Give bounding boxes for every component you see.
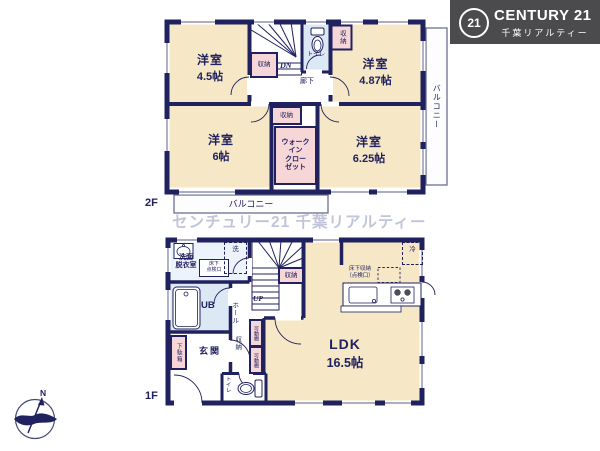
entrance-label: 玄関 xyxy=(190,346,230,357)
stairs-up-label: UP xyxy=(253,294,263,303)
room-name: LDK xyxy=(329,336,361,352)
movable-shelf-bottom-label: 可動棚 xyxy=(250,347,262,373)
walk-in-closet-label: ウォーク イン クロー ゼット xyxy=(275,127,316,184)
room-name: 洋室 xyxy=(208,131,234,148)
hall-closet-label: 収納 xyxy=(233,336,241,351)
logo-brand-text: CENTURY 21 xyxy=(494,7,592,24)
compass-icon xyxy=(8,388,66,446)
toilet-icon-1f xyxy=(238,380,262,397)
refrigerator-space: 冷 xyxy=(402,242,423,265)
floor-label-1f: 1F xyxy=(145,390,158,403)
room-label-2f-se: 洋室 6.25帖 xyxy=(318,133,420,166)
compass: N xyxy=(8,388,66,446)
logo-badge-number: 21 xyxy=(467,16,480,30)
room-size: 6.25帖 xyxy=(353,150,385,166)
toilet-icon-2f xyxy=(311,28,324,53)
closet-by-stairs-label-2f: 収納 xyxy=(251,53,277,77)
room-label-2f-ne: 洋室 4.87帖 xyxy=(331,55,420,88)
closet-by-stairs-label-1f: 収納 xyxy=(279,268,303,283)
room-name: 洋室 xyxy=(362,55,388,72)
washer-space: 洗 xyxy=(224,242,247,274)
logo-subtitle: 千葉リアルティー xyxy=(494,26,596,39)
washroom-label: 洗面 脱衣室 xyxy=(170,254,202,271)
movable-shelf-top-label: 可動棚 xyxy=(250,320,262,346)
closet-center-label-2f: 収納 xyxy=(272,107,301,124)
floorplan-2f-drawing xyxy=(145,15,465,220)
room-size: 6帖 xyxy=(212,148,229,164)
balcony-right-label: バルコニー xyxy=(426,28,447,185)
room-label-ldk: LDK 16.5帖 xyxy=(293,336,397,371)
kitchen-sink-icon xyxy=(349,287,377,303)
floorplan-2f: 洋室 4.5帖 洋室 4.87帖 洋室 6帖 洋室 6.25帖 DN 廊下 トイ… xyxy=(145,15,465,220)
room-name: 洋室 xyxy=(356,133,382,150)
toilet-label-1f: トイレ xyxy=(224,376,231,393)
room-label-2f-sw: 洋室 6帖 xyxy=(170,131,272,164)
toilet-label-2f: トイレ xyxy=(302,52,330,59)
unit-bath-label: UB xyxy=(201,300,215,311)
room-label-2f-nw: 洋室 4.5帖 xyxy=(170,51,250,84)
stairs-down-label: DN xyxy=(280,61,292,71)
floor-label-2f: 2F xyxy=(145,197,158,210)
compass-north-label: N xyxy=(40,388,46,398)
balcony-bottom-label: バルコニー xyxy=(174,195,328,213)
century21-logo: 21 CENTURY 21 千葉リアルティー xyxy=(450,0,600,44)
room-size: 4.5帖 xyxy=(197,68,223,84)
room-size: 4.87帖 xyxy=(359,72,391,88)
underfloor-storage-label: 床下収納 （点検口） xyxy=(342,266,378,280)
hall-label: ホール xyxy=(230,302,238,325)
shoe-cabinet-label: 下駄箱 xyxy=(171,336,186,369)
room-size: 16.5帖 xyxy=(327,352,364,371)
closet-ne-label-2f: 収納 xyxy=(331,25,352,50)
hallway-label: 廊下 xyxy=(291,78,323,86)
floorplan-1f: 洗面 脱衣室 床下 点検口 洗 UB UP ホール 収納 下駄箱 玄関 収納 可… xyxy=(145,230,465,430)
bathtub-icon xyxy=(173,287,200,329)
stove-icon xyxy=(391,287,414,303)
room-name: 洋室 xyxy=(197,51,223,68)
